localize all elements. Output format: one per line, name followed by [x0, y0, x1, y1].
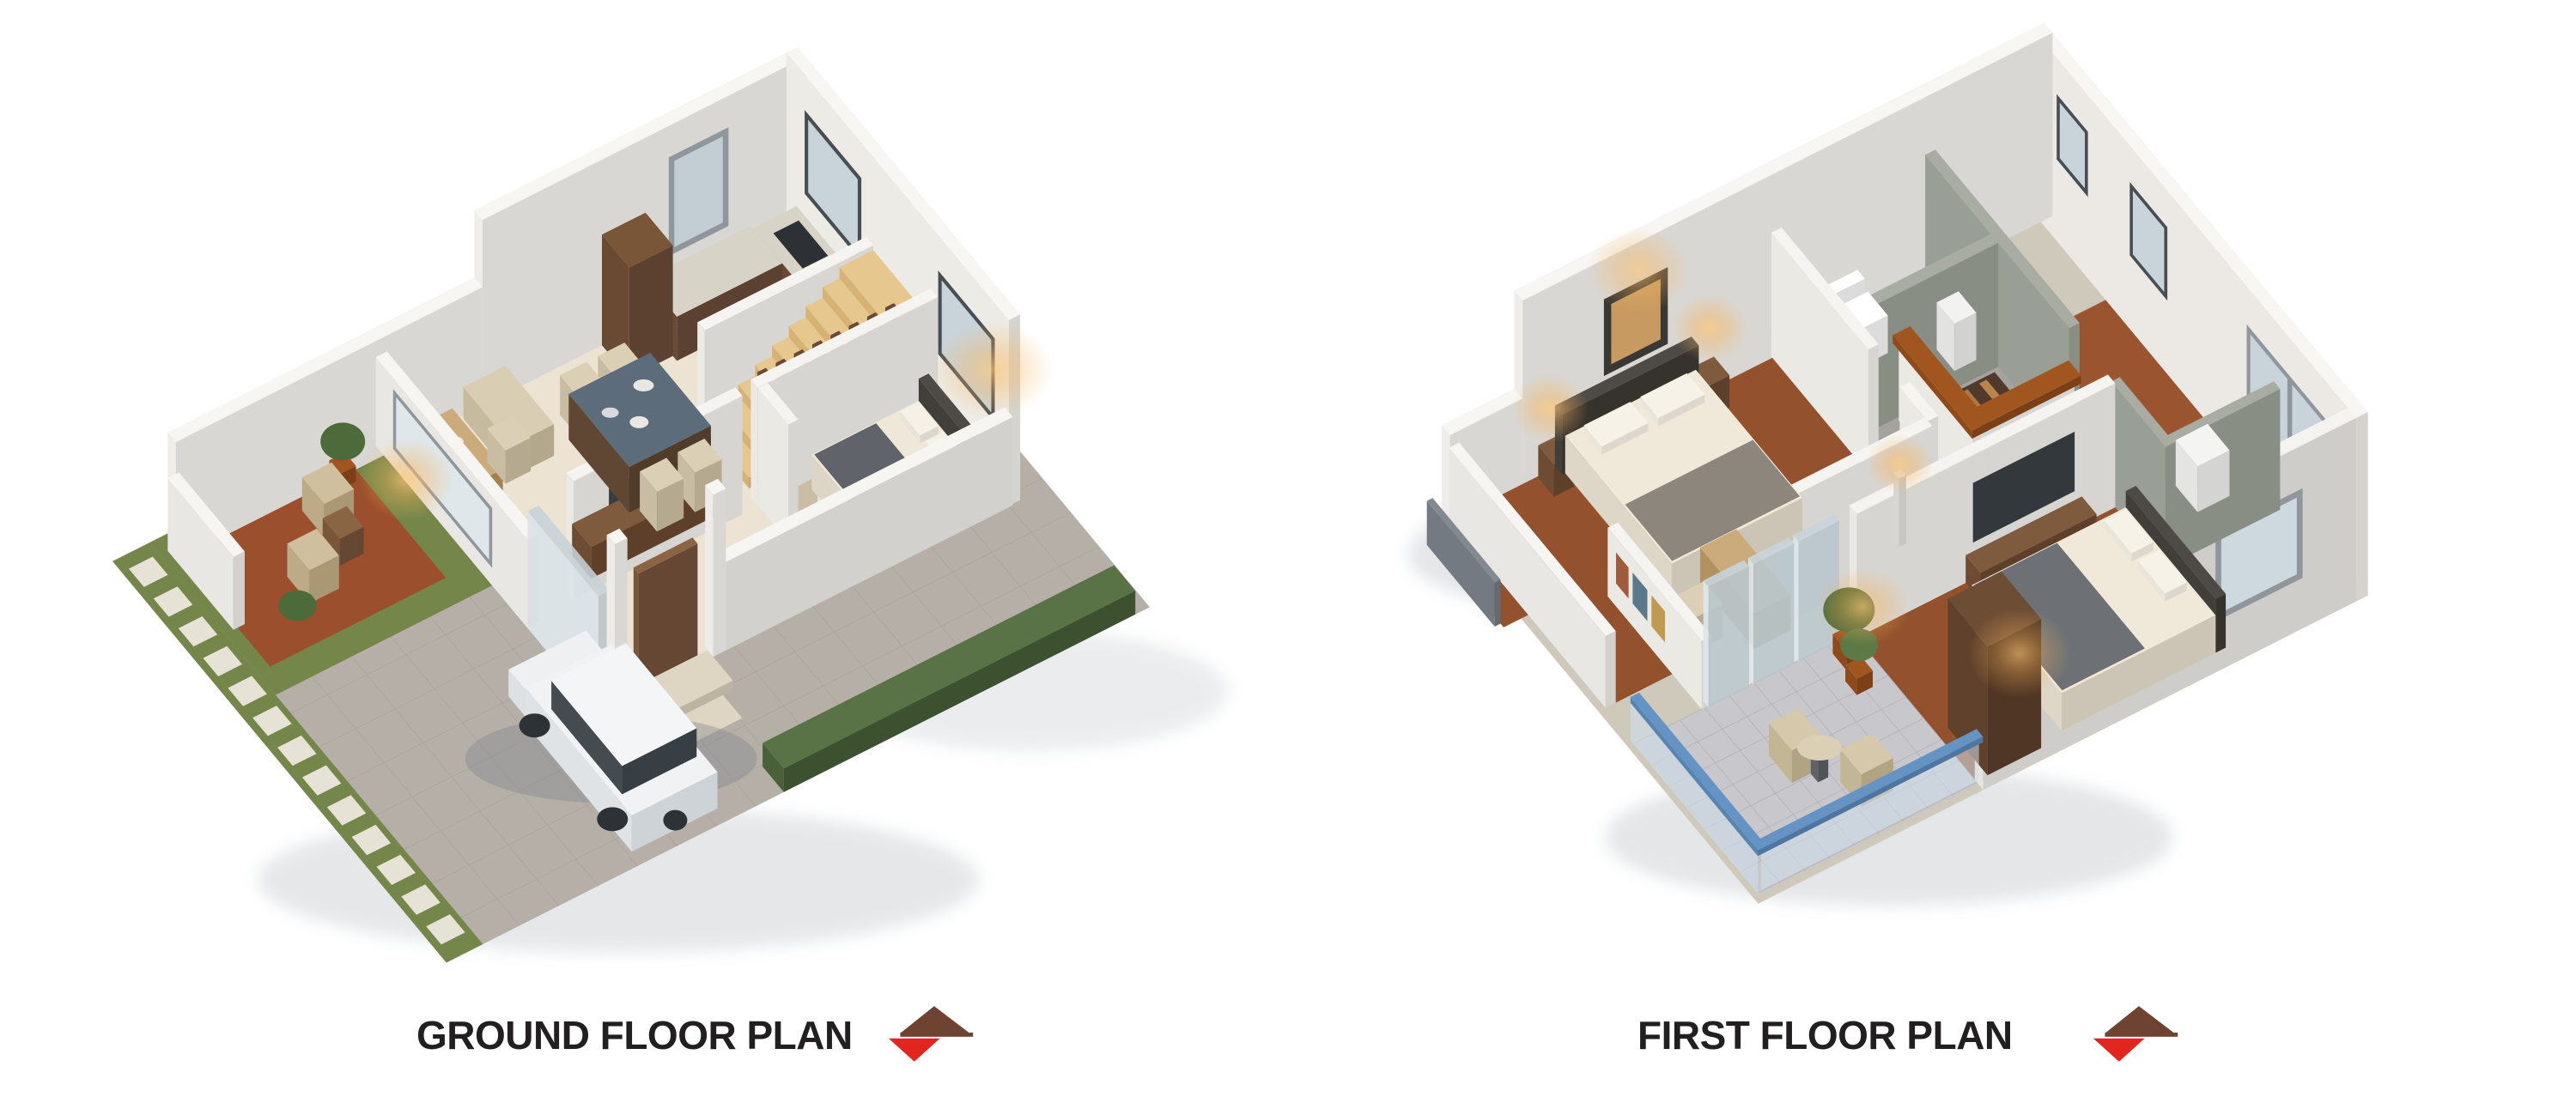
marker-baseline: [900, 1033, 973, 1037]
car-wheel: [597, 807, 628, 831]
direction-marker-icon: [2092, 1003, 2183, 1062]
glass-door-panel: [1704, 561, 1749, 708]
lamp-glow: [1511, 374, 1589, 443]
first-floor-plan-label: FIRST FLOOR PLAN: [1637, 1015, 2013, 1055]
ground-floor-plan-figure: [17, 13, 1271, 983]
glass-door-panel: [1748, 537, 1794, 685]
up-triangle: [901, 1006, 969, 1033]
first-floor-plan-3d-render: [1340, 4, 2542, 974]
direction-marker-icon: [887, 1003, 978, 1062]
floor-lamp-glow: [1866, 434, 1935, 493]
first-floor-plan-figure: [1340, 4, 2542, 974]
ground-floor-caption: GROUND FLOOR PLAN: [416, 1015, 978, 1062]
tableware: [629, 416, 648, 428]
car-wheel: [663, 810, 687, 831]
tableware: [602, 408, 619, 418]
up-triangle: [2105, 1006, 2173, 1033]
bedroom2-glow: [1968, 609, 2071, 698]
terrace-table-top: [1797, 735, 1842, 761]
porch-pillar: [705, 479, 726, 657]
car-wheel: [519, 713, 550, 737]
down-triangle: [889, 1039, 940, 1062]
art-lamp-glow: [1588, 227, 1691, 313]
terrace-glow: [1815, 568, 1910, 645]
tableware: [633, 379, 653, 391]
first-floor-caption: FIRST FLOOR PLAN: [1637, 1015, 2183, 1062]
ground-floor-plan-label: GROUND FLOOR PLAN: [416, 1015, 853, 1055]
patio-lamp-glow: [359, 438, 453, 520]
ground-floor-plan-3d-render: [17, 13, 1271, 983]
bedroom-lamp-glow: [933, 322, 1053, 418]
patio-plant: [320, 422, 365, 460]
patio-plant: [278, 591, 316, 621]
lamp-glow: [1671, 294, 1748, 362]
down-triangle: [2093, 1039, 2145, 1062]
marker-baseline: [2105, 1033, 2178, 1037]
